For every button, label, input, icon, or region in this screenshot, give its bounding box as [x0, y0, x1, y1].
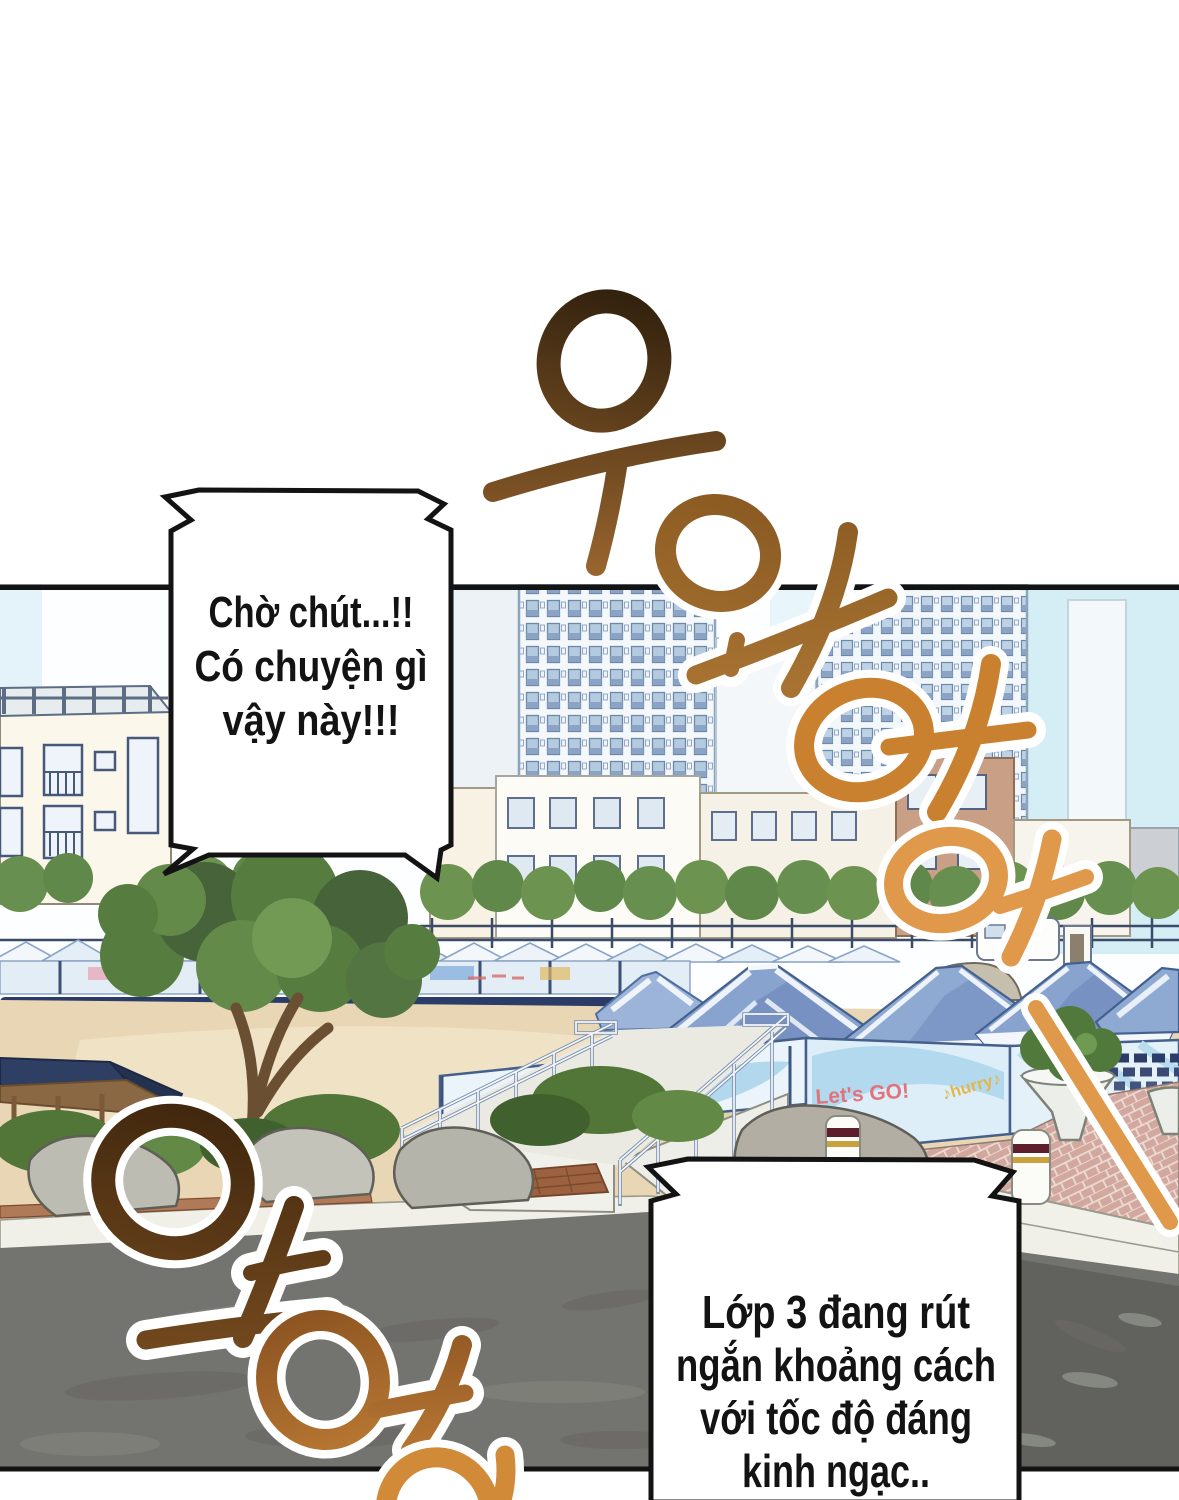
svg-text:Lớp 3 đang rút: Lớp 3 đang rút [702, 1286, 970, 1338]
svg-text:vậy này!!!: vậy này!!! [223, 696, 400, 745]
svg-text:Có chuyện gì: Có chuyện gì [195, 642, 428, 691]
svg-text:ngắn khoảng cách: ngắn khoảng cách [676, 1339, 996, 1391]
svg-text:Chờ chút...!!: Chờ chút...!! [209, 588, 414, 637]
svg-text:với tốc độ đáng: với tốc độ đáng [700, 1392, 972, 1444]
svg-text:kinh ngạc..: kinh ngạc.. [742, 1445, 930, 1497]
